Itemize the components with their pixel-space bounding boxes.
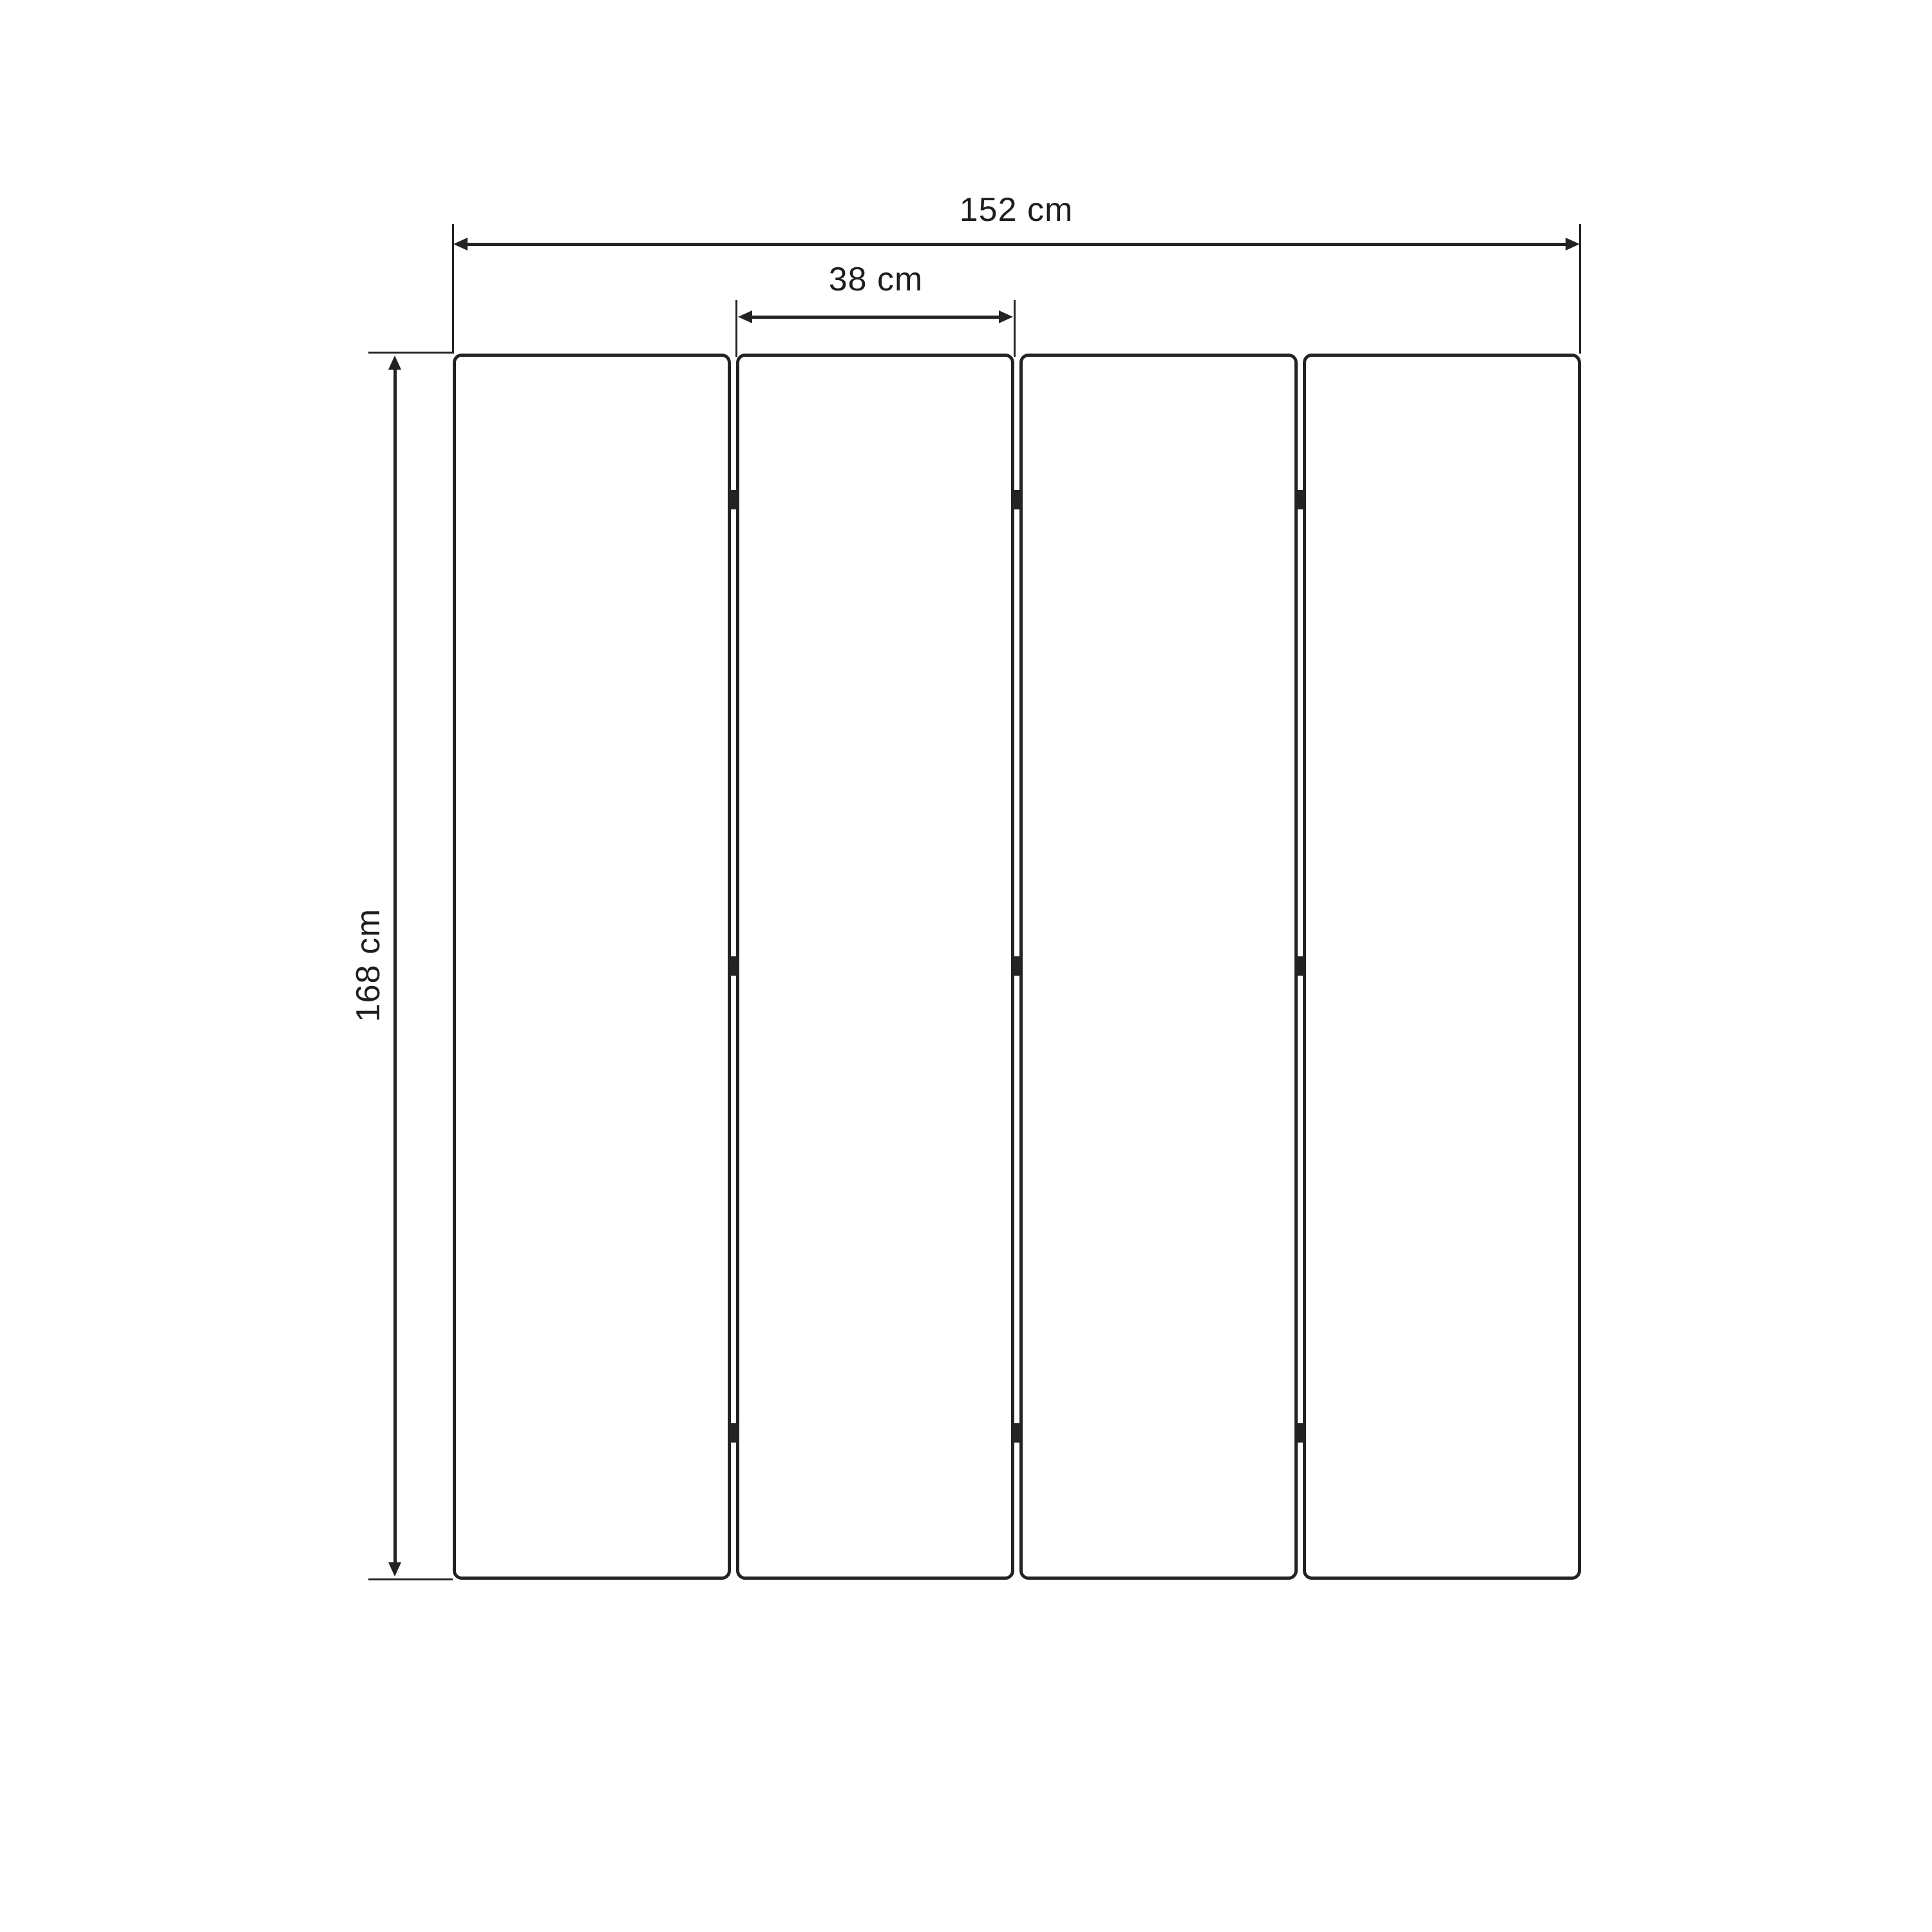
arrowhead-up: [388, 355, 401, 370]
dimension-diagram: 152 cm 38 cm 168 cm: [0, 0, 1932, 1932]
hinge-gap1-middle: [729, 956, 738, 976]
height-label: 168 cm: [350, 909, 386, 1023]
extension-line-right: [1014, 300, 1016, 357]
hinge-gap2-middle: [1012, 956, 1021, 976]
hinge-gap3-middle: [1296, 956, 1305, 976]
dimension-line: [752, 316, 999, 319]
dimension-line: [467, 243, 1566, 246]
panel-width-label: 38 cm: [829, 261, 923, 298]
total-width-label: 152 cm: [960, 192, 1074, 228]
hinge-gap3-bottom: [1296, 1423, 1305, 1443]
panel-4: [1303, 354, 1581, 1580]
hinge-gap1-bottom: [729, 1423, 738, 1443]
hinge-gap2-top: [1012, 490, 1021, 509]
dimension-line: [393, 370, 397, 1564]
arrowhead-right: [999, 310, 1013, 323]
hinge-gap1-top: [729, 490, 738, 509]
tick-line-top: [368, 352, 453, 354]
arrowhead-down: [388, 1562, 401, 1577]
arrowhead-right: [1566, 238, 1580, 251]
panel-2: [736, 354, 1014, 1580]
extension-line-left: [735, 300, 737, 357]
arrowhead-left: [738, 310, 752, 323]
hinge-gap2-bottom: [1012, 1423, 1021, 1443]
panel-1: [453, 354, 731, 1580]
panel-3: [1019, 354, 1298, 1580]
tick-line-bottom: [368, 1578, 453, 1580]
hinge-gap3-top: [1296, 490, 1305, 509]
arrowhead-left: [453, 238, 468, 251]
